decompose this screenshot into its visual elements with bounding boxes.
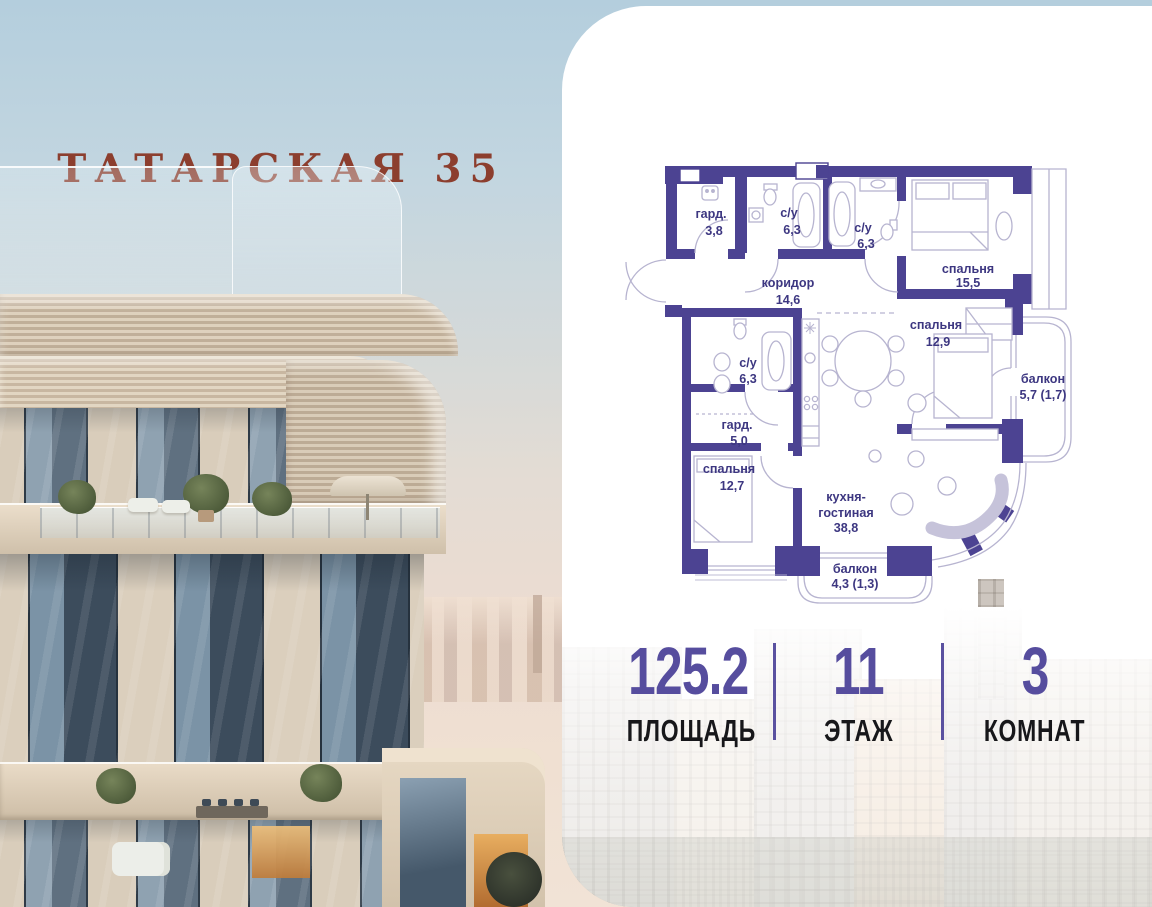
lit-window: [252, 826, 310, 878]
room-area: 15,5: [956, 276, 981, 290]
penthouse-glass: [0, 166, 232, 300]
stat-floor-label: ЭТАЖ: [824, 713, 893, 749]
stat-rooms: 3 КОМНАТ: [944, 640, 1126, 749]
room-label: балкон: [1021, 372, 1065, 386]
building-wing: [382, 748, 545, 907]
room-label: гард.: [721, 418, 752, 432]
stat-area: 125.2 ПЛОЩАДЬ: [604, 640, 773, 749]
terrace-plant: [300, 764, 342, 802]
room-area: 6,3: [739, 372, 757, 386]
stat-area-label: ПЛОЩАДЬ: [627, 713, 756, 749]
room-label: с/у: [854, 221, 872, 235]
tree: [486, 852, 542, 907]
room-label: с/у: [739, 356, 757, 370]
room-area: 12,9: [926, 335, 951, 349]
room-area: 5,0: [730, 434, 748, 448]
apartment-card-page: ТАТАРСКАЯ 35: [0, 0, 1152, 907]
room-label: с/у: [780, 206, 798, 220]
room-area: 6,3: [857, 237, 875, 251]
room-label: кухня-: [826, 490, 866, 504]
cornice-band: [0, 294, 458, 356]
stat-rooms-label: КОМНАТ: [984, 713, 1085, 749]
stat-rooms-value: 3: [1022, 640, 1049, 704]
terrace-sofa: [112, 842, 170, 876]
room-area: 6,3: [783, 223, 801, 237]
room-label: гард.: [695, 207, 726, 221]
plant-pot: [198, 510, 214, 522]
terrace-plant: [58, 480, 96, 514]
terrace-umbrella: [330, 476, 406, 496]
stat-floor: 11 ЭТАЖ: [776, 640, 941, 749]
room-area: 12,7: [720, 479, 745, 493]
terrace-table: [196, 806, 268, 818]
room-area: 14,6: [776, 293, 801, 307]
room-label: коридор: [762, 276, 815, 290]
room-label: гостиная: [818, 506, 873, 520]
stat-area-value: 125.2: [628, 640, 748, 704]
terrace-plant: [252, 482, 292, 516]
wing-window: [400, 778, 466, 907]
room-area: 5,7 (1,7): [1020, 388, 1067, 402]
penthouse-glass-round: [232, 166, 402, 299]
floor-plan: гард. 3,8 с/у 6,3 с/у 6,3 спальня 15,5 к…: [612, 156, 1090, 626]
stat-floor-value: 11: [833, 640, 884, 704]
apartment-stats: 125.2 ПЛОЩАДЬ 11 ЭТАЖ 3 КОМНАТ: [562, 640, 1152, 749]
room-area: 4,3 (1,3): [832, 577, 879, 591]
apartment-info-card[interactable]: гард. 3,8 с/у 6,3 с/у 6,3 спальня 15,5 к…: [562, 6, 1152, 907]
room-label: спальня: [703, 462, 755, 476]
lounge-chair: [128, 498, 158, 512]
room-label: спальня: [942, 262, 994, 276]
room-label: балкон: [833, 562, 877, 576]
room-area: 3,8: [705, 224, 723, 238]
room-area: 38,8: [834, 521, 859, 535]
lounge-chair: [162, 500, 190, 513]
room-label: спальня: [910, 318, 962, 332]
terrace-plant: [96, 768, 136, 804]
facade-windows-main: [0, 554, 424, 762]
